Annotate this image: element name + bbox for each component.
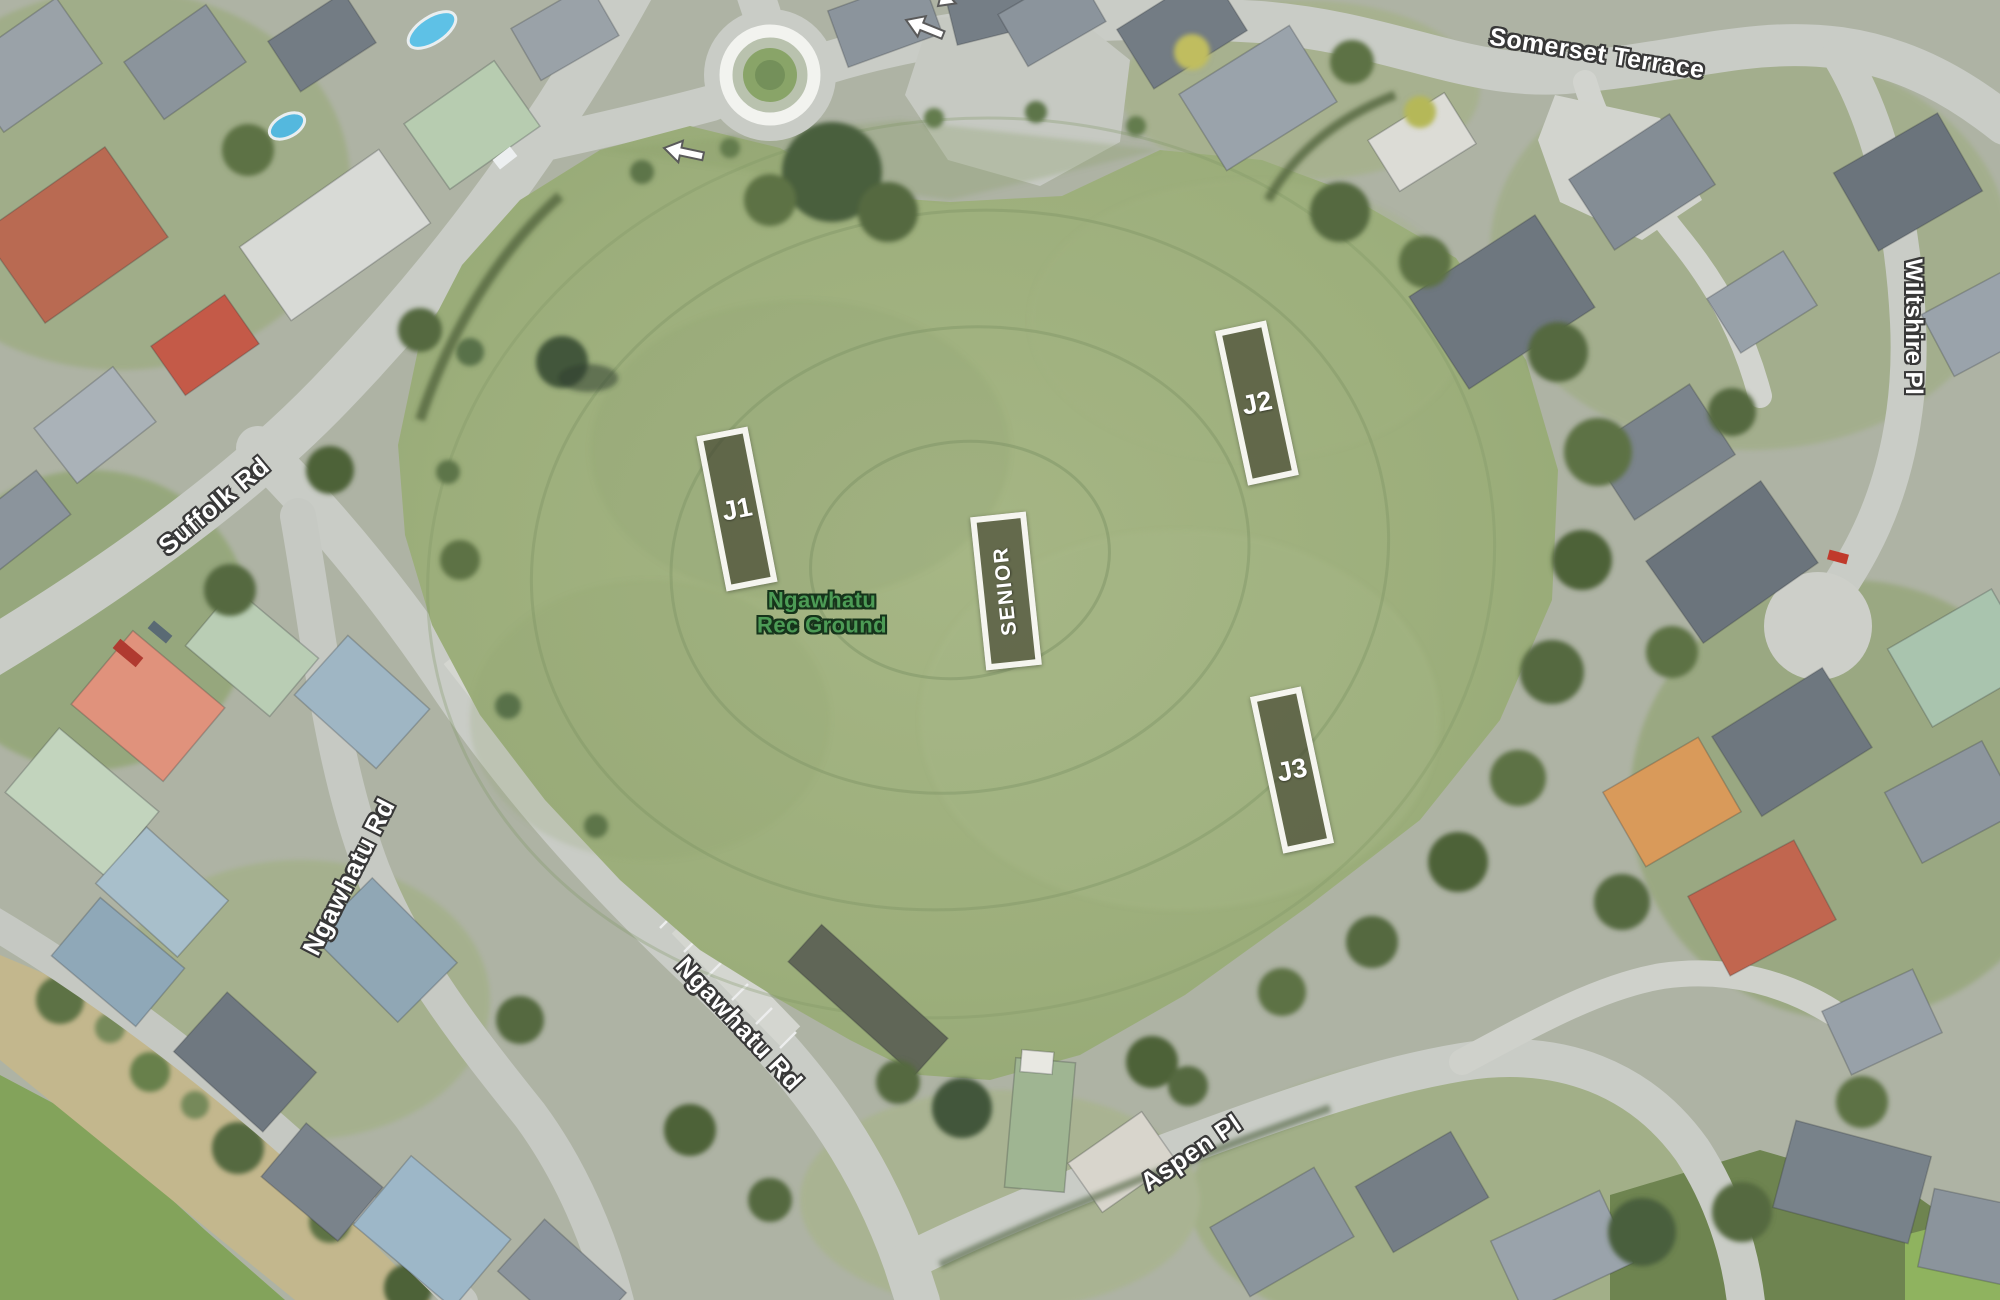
- road-label-wiltshire-pl: Wiltshire Pl: [1899, 259, 1927, 395]
- road-label-ngawhatu-rd-upper: Ngawhatu Rd: [296, 794, 402, 961]
- pitch-label: J2: [1239, 385, 1275, 422]
- park-name-line1: Ngawhatu: [757, 588, 887, 613]
- pitch-marker-j1: J1: [696, 426, 777, 591]
- park-name-line2: Rec Ground: [757, 613, 887, 638]
- pitch-marker-j3: J3: [1250, 686, 1334, 853]
- road-label-suffolk-rd: Suffolk Rd: [152, 451, 275, 562]
- pitch-label: J1: [719, 491, 754, 527]
- pitch-label: J3: [1274, 752, 1310, 789]
- annotation-overlay: J1 J2 J3 SENIOR Ngawhatu Rec Ground Some…: [0, 0, 2000, 1300]
- pitch-marker-j2: J2: [1215, 320, 1299, 485]
- satellite-map: J1 J2 J3 SENIOR Ngawhatu Rec Ground Some…: [0, 0, 2000, 1300]
- road-label-aspen-pl: Aspen Pl: [1135, 1108, 1248, 1198]
- pitch-label: SENIOR: [989, 545, 1022, 637]
- road-label-somerset-terrace: Somerset Terrace: [1487, 23, 1706, 86]
- park-name-label: Ngawhatu Rec Ground: [757, 588, 887, 637]
- pitch-marker-senior: SENIOR: [970, 511, 1042, 670]
- road-label-ngawhatu-rd-lower: Ngawhatu Rd: [669, 951, 809, 1098]
